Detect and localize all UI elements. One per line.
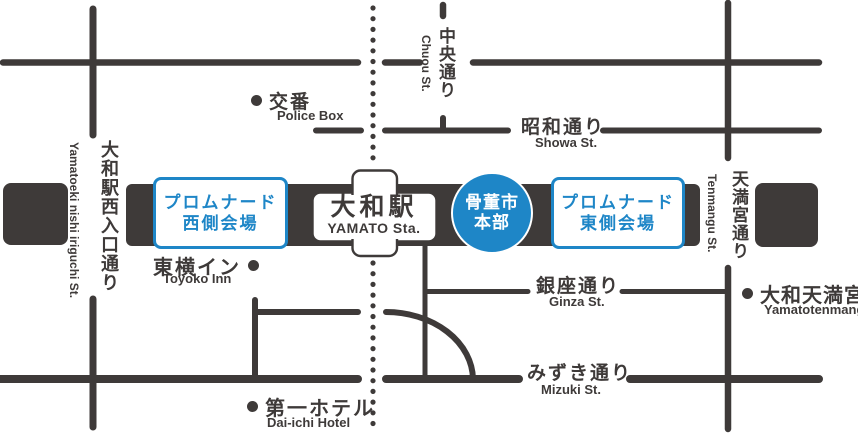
- venue-west-line2: 西側会場: [183, 213, 259, 234]
- station-name-jp: 大和駅: [310, 193, 438, 221]
- hq-line1: 骨董市: [465, 193, 519, 213]
- south-side-roads: [255, 300, 473, 379]
- venue-east-line2: 東側会場: [580, 213, 656, 234]
- toyoko-inn-en: Toyoko Inn: [163, 271, 231, 286]
- station-name-en: YAMATO Sta.: [310, 221, 438, 235]
- east-building-block: [755, 183, 818, 247]
- chuou-street-jp: 中央通り: [433, 27, 458, 99]
- location-dot-icon: [247, 401, 258, 412]
- yamato-tenmangu-en: Yamatotenmangu: [764, 302, 858, 317]
- tenmangu-street-jp: 天満宮通り: [726, 170, 751, 260]
- chuou-street-en: Chuou St.: [419, 35, 433, 92]
- location-dot-icon: [251, 95, 262, 106]
- ginza-street-en: Ginza St.: [549, 294, 605, 309]
- venue-east-line1: プロムナード: [561, 192, 675, 213]
- nishi-iriguchi-street-jp: 大和駅西入口通り: [96, 140, 122, 292]
- station-label: 大和駅 YAMATO Sta.: [310, 193, 438, 235]
- mizuki-street-en: Mizuki St.: [541, 382, 601, 397]
- venue-west-box: プロムナード 西側会場: [153, 177, 288, 249]
- venue-west-line1: プロムナード: [164, 192, 278, 213]
- police-box-en: Police Box: [277, 108, 343, 123]
- nishi-iriguchi-street-en: Yamatoeki nishi iriguchi St.: [67, 142, 81, 298]
- venue-east-box: プロムナード 東側会場: [551, 177, 685, 249]
- hq-line2: 本部: [474, 213, 510, 233]
- location-dot-icon: [248, 260, 259, 271]
- daiichi-hotel-en: Dai-ichi Hotel: [267, 415, 350, 430]
- showa-street-en: Showa St.: [535, 135, 597, 150]
- tenmangu-street-en: Tenmangu St.: [705, 174, 719, 252]
- mizuki-street-jp: みずき通り: [527, 358, 632, 385]
- yamato-station-area-map: 大和駅 YAMATO Sta. 骨董市 本部 プロムナード 西側会場 プロムナー…: [0, 0, 858, 434]
- location-dot-icon: [742, 288, 753, 299]
- antique-market-hq-badge: 骨董市 本部: [451, 172, 533, 254]
- west-building-block: [3, 183, 68, 245]
